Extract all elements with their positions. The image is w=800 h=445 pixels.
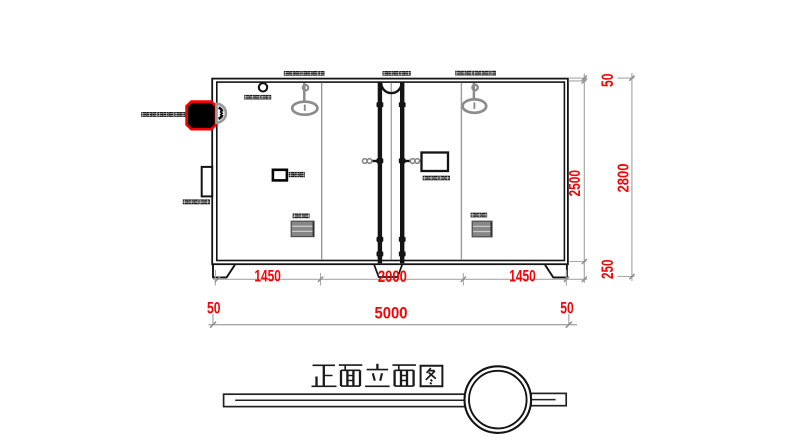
svg-text:5000: 5000 [375, 305, 408, 323]
svg-text:2500: 2500 [567, 170, 584, 197]
svg-text:50: 50 [560, 300, 574, 318]
svg-text:250: 250 [599, 260, 617, 280]
svg-text:50: 50 [599, 74, 617, 88]
svg-text:2800: 2800 [616, 164, 633, 193]
svg-text:2000: 2000 [378, 268, 407, 286]
svg-text:1450: 1450 [254, 268, 281, 286]
svg-text:1450: 1450 [509, 268, 536, 286]
svg-text:50: 50 [207, 300, 221, 318]
